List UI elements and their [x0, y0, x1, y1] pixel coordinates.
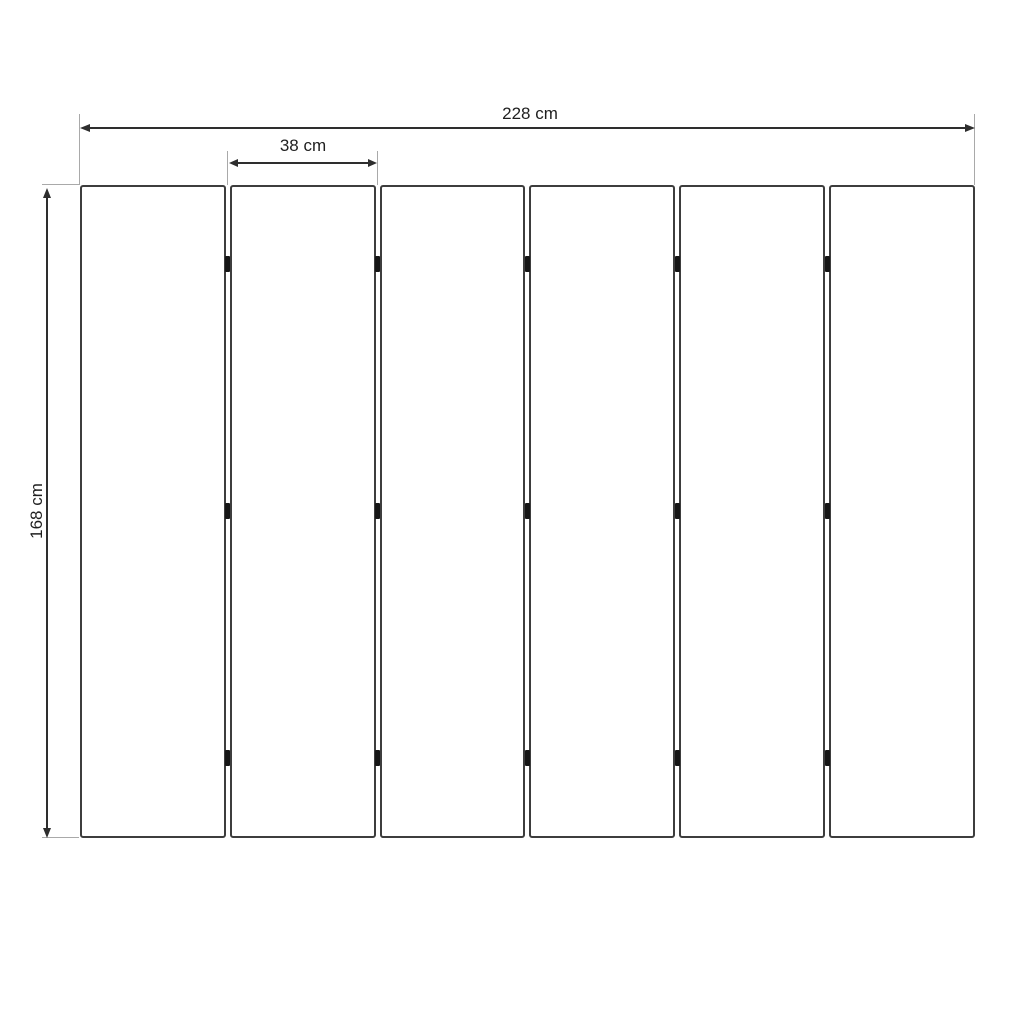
hinge [375, 503, 380, 519]
extension-line-panel-width-left [227, 151, 228, 185]
panel-width-dimension-line [237, 162, 369, 164]
hinge [225, 750, 230, 766]
hinge [225, 503, 230, 519]
extension-line-height-top [42, 184, 79, 185]
hinge [675, 503, 680, 519]
panel [80, 185, 226, 838]
panel [679, 185, 825, 838]
hinge [525, 750, 530, 766]
arrowhead-down-icon [43, 828, 51, 838]
panel-width-dimension-label: 38 cm [253, 136, 353, 156]
hinge [825, 256, 830, 272]
hinge [375, 256, 380, 272]
panel [529, 185, 675, 838]
arrowhead-right-icon [965, 124, 975, 132]
panel [230, 185, 376, 838]
panel [380, 185, 526, 838]
hinge [825, 750, 830, 766]
panel-layout-diagram: 228 cm 38 cm 168 cm [0, 0, 1024, 1024]
hinge [675, 256, 680, 272]
total-width-dimension-label: 228 cm [480, 104, 580, 124]
hinge [525, 503, 530, 519]
hinge [675, 750, 680, 766]
hinge [225, 256, 230, 272]
panel [829, 185, 975, 838]
hinge [825, 503, 830, 519]
total-width-dimension-line [89, 127, 966, 129]
extension-line-panel-width-right [377, 151, 378, 185]
height-dimension-label: 168 cm [27, 483, 47, 539]
arrowhead-right-icon [368, 159, 377, 167]
hinge [525, 256, 530, 272]
hinge [375, 750, 380, 766]
